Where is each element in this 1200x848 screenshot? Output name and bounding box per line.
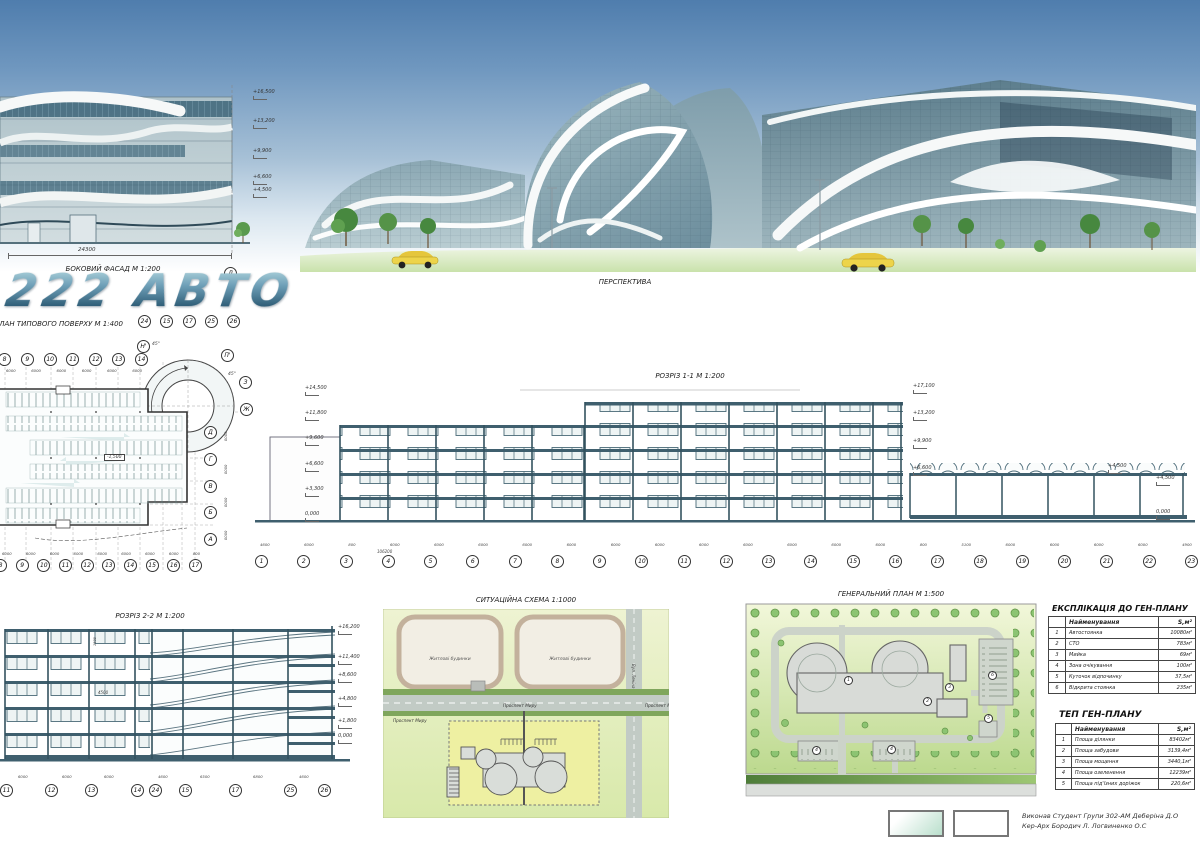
plan-top-dimensions: 600060006000600060006000 xyxy=(6,368,142,373)
axis-bubble: 5 xyxy=(424,555,437,568)
dimension-label: 6000 xyxy=(522,542,532,547)
row-number: 5 xyxy=(1056,779,1072,790)
elevation-mark: +6,600 xyxy=(305,462,327,472)
plan-marker: 4 xyxy=(812,746,821,755)
axis-bubble: 13 xyxy=(762,555,775,568)
axis-bubble: 8 xyxy=(551,555,564,568)
row-area: 10080м² xyxy=(1159,628,1196,639)
dimension-label: 6000 xyxy=(57,368,67,373)
plan-marker: 1 xyxy=(844,676,853,685)
table-row: 2 Площа забудови 3139,4м² xyxy=(1056,746,1195,757)
block-label: Житлові будинки xyxy=(548,656,590,662)
axis-bubble: 17 xyxy=(183,315,196,328)
row-name: Площа забудови xyxy=(1071,746,1158,757)
block-label: Житлові будинки xyxy=(428,656,470,662)
row-number: 5 xyxy=(1049,672,1066,683)
dimension-label: 6000 xyxy=(62,774,72,779)
axis-bubble: 10 xyxy=(37,559,50,572)
elevation-mark: +13,200 xyxy=(913,411,935,421)
dimension-label: 6000 xyxy=(224,465,229,475)
building-right-block xyxy=(762,80,1196,248)
dimension-label: 6000 xyxy=(1138,542,1148,547)
elevation-mark: 0,000 xyxy=(338,734,360,744)
presentation-board: +16,500+13,200+9,900+6,600+4,500 24300 Б… xyxy=(0,0,1200,848)
credits-line: Кер-Арх Бородич Л. Логвиненко О.С xyxy=(1022,821,1178,831)
legend-swatch-green xyxy=(888,810,944,837)
row-area: 100м² xyxy=(1159,661,1196,672)
axis-bubble: 12 xyxy=(45,784,58,797)
section-2-2-dimensions: 6000600060004600650068004600 xyxy=(0,774,340,782)
general-plan: ГЕНЕРАЛЬНИЙ ПЛАН М 1:500 1234456 xyxy=(745,590,1037,816)
explication-table: Найменування S,м² 1 Автостоянка 10080м² … xyxy=(1048,616,1196,694)
axis-bubble: 17 xyxy=(229,784,242,797)
axis-bubble: 8 xyxy=(0,559,7,572)
section-1-1-right-elevations: +4,5000,000 xyxy=(1156,476,1175,520)
dimension-label: 6000 xyxy=(2,551,12,556)
dimension-label: 6000 xyxy=(478,542,488,547)
ramp-angle-label: 45° xyxy=(228,372,236,377)
general-plan-map xyxy=(745,603,1037,803)
axis-bubble: 12 xyxy=(89,353,102,366)
elevation-mark: +13,200 xyxy=(253,119,275,129)
section-2-2-axis-bubbles: 111213142415172526 xyxy=(0,784,340,798)
facade-total-dimension: 24300 xyxy=(78,247,96,253)
dimension-label: 6000 xyxy=(1094,542,1104,547)
table-row: 4 Площа озеленення 12239м² xyxy=(1056,768,1195,779)
row-number: 4 xyxy=(1056,768,1072,779)
credits-block: Виконав Студент Групи 302-АМ Деберіна Д.… xyxy=(1022,811,1178,832)
side-facade-render xyxy=(0,85,250,255)
row-name: Автостоянка xyxy=(1066,628,1159,639)
dimension-label: 6000 xyxy=(224,531,229,541)
ground-line xyxy=(255,520,1195,523)
elevation-mark: +6,600 xyxy=(253,175,275,185)
plan-level-label: -1,500 xyxy=(104,454,125,461)
building-left-wing xyxy=(305,160,525,248)
elevation-mark: +9,900 xyxy=(253,149,275,159)
axis-bubble: 25 xyxy=(205,315,218,328)
axis-bubble: 23 xyxy=(1185,555,1198,568)
general-plan-title: ГЕНЕРАЛЬНИЙ ПЛАН М 1:500 xyxy=(791,590,991,598)
dimension-label: 6000 xyxy=(18,774,28,779)
section-1-1-title: РОЗРІЗ 1-1 М 1:200 xyxy=(590,372,790,380)
row-number: 3 xyxy=(1056,757,1072,768)
axis-bubble: 18 xyxy=(974,555,987,568)
plan-marker: 2 xyxy=(923,697,932,706)
elevation-mark: +4,500 xyxy=(253,188,275,198)
axis-bubble: 9 xyxy=(21,353,34,366)
elevation-mark: +14,500 xyxy=(305,386,327,396)
axis-bubble: 15 xyxy=(847,555,860,568)
dimension-label: 6000 xyxy=(699,542,709,547)
axis-bubble: 15 xyxy=(160,315,173,328)
row-number: 4 xyxy=(1049,661,1066,672)
row-number: 2 xyxy=(1049,639,1066,650)
elevation-mark: +6,600 xyxy=(913,466,935,476)
dimension-label: 800 xyxy=(348,542,355,547)
dimension-label: 6000 xyxy=(26,551,36,556)
axis-bubble: 9 xyxy=(16,559,29,572)
dimension-label: 6000 xyxy=(787,542,797,547)
axis-bubble: 1 xyxy=(255,555,268,568)
section-2-2-svg: 4500 1500 xyxy=(0,624,352,774)
row-area: 83402м² xyxy=(1159,735,1195,746)
residential-block: Житлові будинки xyxy=(517,617,623,687)
dimension-label: 6000 xyxy=(831,542,841,547)
elevation-mark: +1,800 xyxy=(338,719,360,729)
dimension-label: 6000 xyxy=(6,368,16,373)
axis-bubble: 11 xyxy=(59,559,72,572)
axis-bubble: 15 xyxy=(179,784,192,797)
dimension-label: 6000 xyxy=(82,368,92,373)
table-row: 3 Мийка 69м² xyxy=(1049,650,1196,661)
dimension-label: 6000 xyxy=(50,551,60,556)
row-name: Зона очікування xyxy=(1066,661,1159,672)
section-middle-part xyxy=(585,402,903,520)
axis-bubble: 17 xyxy=(931,555,944,568)
dimension-label: 4600 xyxy=(158,774,168,779)
axis-bubble: Н' xyxy=(137,340,150,353)
situation-map: Житлові будинки Житлові будинки Вул. Лен… xyxy=(383,609,669,818)
table-row: 2 СТО 783м² xyxy=(1049,639,1196,650)
dimension-label: 4600 xyxy=(260,542,270,547)
axis-bubble: 16 xyxy=(889,555,902,568)
plan-right-axis-bubbles: ДГВБА xyxy=(204,426,217,546)
axis-bubble: 17 xyxy=(189,559,202,572)
elevation-mark: +11,800 xyxy=(305,411,327,421)
row-area: 235м² xyxy=(1159,683,1196,694)
elevation-mark: +9,900 xyxy=(913,439,935,449)
perspective-title: ПЕРСПЕКТИВА xyxy=(550,278,700,286)
facade-entrance xyxy=(70,215,96,243)
window-dimension: 4500 xyxy=(98,690,109,695)
section-1-1-mid-elevations: +17,100+13,200+9,900+6,600 xyxy=(913,384,935,476)
axis-bubble: 24 xyxy=(138,315,151,328)
row-area: 37,5м² xyxy=(1159,672,1196,683)
legend-swatch-white xyxy=(953,810,1009,837)
dimension-label: 6000 xyxy=(743,542,753,547)
elevation-mark: +9,600 xyxy=(305,436,327,446)
axis-bubble: 11 xyxy=(66,353,79,366)
row-area: 12239м² xyxy=(1159,768,1195,779)
axis-bubble: 13 xyxy=(112,353,125,366)
dimension-label: 800 xyxy=(193,551,200,556)
axis-bubble: 20 xyxy=(1058,555,1071,568)
axis-bubble: 6 xyxy=(466,555,479,568)
tep-title: ТЕП ГЕН-ПЛАНУ xyxy=(1059,710,1195,720)
section-1-1-left-elevations: +14,500+11,800+9,600+6,600+3,3000,000 xyxy=(305,386,327,522)
plan-marker: 5 xyxy=(984,714,993,723)
section-1-1-total-dimension: 106200 xyxy=(377,549,392,554)
axis-bubble: 16 xyxy=(167,559,180,572)
axis-bubble: Д xyxy=(204,426,217,439)
table-row: 1 Площа ділянки 83402м² xyxy=(1056,735,1195,746)
elevation-mark: +16,200 xyxy=(338,625,360,635)
column-header-num xyxy=(1049,617,1066,628)
row-number: 3 xyxy=(1049,650,1066,661)
row-name: СТО xyxy=(1066,639,1159,650)
dimension-label: 6000 xyxy=(567,542,577,547)
dimension-label: 6000 xyxy=(1006,542,1016,547)
row-name: Відкрита стоянка xyxy=(1066,683,1159,694)
row-area: 3440,1м² xyxy=(1159,757,1195,768)
elevation-mark: 0,000 xyxy=(305,512,327,522)
table-row: 5 Площа під'їзних доріжок 220,6м² xyxy=(1056,779,1195,790)
axis-bubble: 8 xyxy=(0,353,11,366)
column-header-name: Найменування xyxy=(1071,724,1158,735)
row-area: 783м² xyxy=(1159,639,1196,650)
dimension-label: 4600 xyxy=(299,774,309,779)
axis-bubble: 25 xyxy=(284,784,297,797)
axis-bubble: 7 xyxy=(509,555,522,568)
dimension-label: 6000 xyxy=(390,542,400,547)
dimension-label: 6000 xyxy=(224,432,229,442)
table-row: 1 Автостоянка 10080м² xyxy=(1049,628,1196,639)
dimension-label: 4900 xyxy=(1182,542,1192,547)
elevation-mark: +4,800 xyxy=(338,697,360,707)
section-2-2-title: РОЗРІЗ 2-2 М 1:200 xyxy=(55,612,245,620)
elevation-mark: +8,600 xyxy=(338,673,360,683)
row-area: 3139,4м² xyxy=(1159,746,1195,757)
project-site xyxy=(447,711,599,805)
axis-bubble: 10 xyxy=(44,353,57,366)
axis-bubble: 26 xyxy=(318,784,331,797)
axis-bubble: 19 xyxy=(1016,555,1029,568)
tep-table-block: ТЕП ГЕН-ПЛАНУ Найменування S,м² 1 Площа … xyxy=(1055,710,1195,790)
dimension-label: 6000 xyxy=(434,542,444,547)
facade-dimension-line: 24300 xyxy=(8,255,232,256)
dimension-label: 6000 xyxy=(97,551,107,556)
row-area: 69м² xyxy=(1159,650,1196,661)
table-row: 5 Куточок відпочинку 37,5м² xyxy=(1049,672,1196,683)
dimension-label: 6000 xyxy=(304,542,314,547)
row-name: Куточок відпочинку xyxy=(1066,672,1159,683)
section-2-2-elevations: +16,200+11,400+8,600+4,800+1,8000,000 xyxy=(338,625,360,744)
street-road xyxy=(746,784,1036,796)
building-central-sails xyxy=(524,82,767,248)
elevation-mark: +11,400 xyxy=(338,655,360,665)
typical-floor-plan: ПЛАН ТИПОВОГО ПОВЕРХУ М 1:400 2415172526… xyxy=(0,312,270,612)
axis-bubble: 11 xyxy=(678,555,691,568)
axis-bubble: 24 xyxy=(149,784,162,797)
explication-table-block: ЕКСПЛІКАЦІЯ ДО ГЕН-ПЛАНУ Найменування S,… xyxy=(1048,604,1198,694)
axis-bubble: 3 xyxy=(340,555,353,568)
dimension-label: 6500 xyxy=(200,774,210,779)
elevation-mark: +16,500 xyxy=(253,90,275,100)
dimension-label: 6000 xyxy=(31,368,41,373)
dimension-label: 6000 xyxy=(655,542,665,547)
row-name: Площа мощення xyxy=(1071,757,1158,768)
dimension-label: 800 xyxy=(920,542,927,547)
axis-bubble: 11 xyxy=(0,784,13,797)
axis-bubble: 21 xyxy=(1100,555,1113,568)
elevation-mark: +4,500 xyxy=(1156,476,1175,486)
dimension-label: 6000 xyxy=(169,551,179,556)
section-1-1-drawing: РОЗРІЗ 1-1 М 1:200 +14,500+11,800+9,600+… xyxy=(255,370,1200,588)
plan-bottom-axis-bubbles: 891011121314151617 xyxy=(0,559,202,572)
perspective-render xyxy=(300,60,1196,272)
avenue-label: Проспект Миру xyxy=(503,703,537,708)
axis-bubble: 22 xyxy=(1143,555,1156,568)
row-name: Площа ділянки xyxy=(1071,735,1158,746)
axis-bubble: 4 xyxy=(382,555,395,568)
plan-right-dimensions: 6000600060006000 xyxy=(221,434,231,538)
axis-bubble: Ж xyxy=(240,403,253,416)
column-header-area: S,м² xyxy=(1159,617,1196,628)
plan-ramp-axis-bubbles: 2415172526 xyxy=(138,315,240,328)
table-row: 3 Площа мощення 3440,1м² xyxy=(1056,757,1195,768)
axis-bubble: 26 xyxy=(227,315,240,328)
axis-bubble: 10 xyxy=(635,555,648,568)
facade-elevation-marks: +16,500+13,200+9,900+6,600+4,500 xyxy=(253,90,275,198)
situation-scheme: Житлові будинки Житлові будинки Вул. Лен… xyxy=(383,596,669,820)
section-2-2-drawing: 4500 1500 РОЗРІЗ 2-2 М 1:200 +16,200+11,… xyxy=(0,608,362,816)
axis-bubble: Г xyxy=(204,453,217,466)
axis-bubble: Б xyxy=(204,506,217,519)
row-name: Площа під'їзних доріжок xyxy=(1071,779,1158,790)
row-area: 220,6м² xyxy=(1159,779,1195,790)
dimension-label: 5100 xyxy=(961,542,971,547)
row-number: 1 xyxy=(1049,628,1066,639)
avenue-label: Проспект Миру xyxy=(645,703,669,708)
section-1-1-svg xyxy=(255,370,1200,538)
axis-bubble: 13 xyxy=(102,559,115,572)
sill-dimension: 1500 xyxy=(93,636,97,646)
dimension-label: 6000 xyxy=(1050,542,1060,547)
section-left-part xyxy=(340,425,585,520)
column-header-name: Найменування xyxy=(1066,617,1159,628)
situation-title: СИТУАЦІЙНА СХЕМА 1:1000 xyxy=(426,596,626,604)
tree xyxy=(234,222,250,243)
street-label: Вул. Леніна xyxy=(631,664,636,689)
plan-top-axis-bubbles: 891011121314 xyxy=(0,353,148,366)
row-number: 6 xyxy=(1049,683,1066,694)
table-row: 4 Зона очікування 100м² xyxy=(1049,661,1196,672)
dimension-label: 6000 xyxy=(74,551,84,556)
elevation-mark: 0,000 xyxy=(1156,510,1175,520)
axis-bubble: 14 xyxy=(135,353,148,366)
axis-bubble: 12 xyxy=(720,555,733,568)
axis-bubble: А xyxy=(204,533,217,546)
plan-title: ПЛАН ТИПОВОГО ПОВЕРХУ М 1:400 xyxy=(0,320,123,328)
axis-bubble: 2 xyxy=(297,555,310,568)
tep-table: Найменування S,м² 1 Площа ділянки 83402м… xyxy=(1055,723,1195,790)
section-1-1-dimensions: 4600600080060006000600060006000600060006… xyxy=(260,542,1192,547)
avenue-label: Проспект Миру xyxy=(393,718,427,723)
axis-bubble: В xyxy=(204,480,217,493)
dimension-label: 6000 xyxy=(107,368,117,373)
section-1-1-axis-bubbles: 1234567891011121314151617181920212223 xyxy=(255,555,1198,568)
axis-bubble: 14 xyxy=(131,784,144,797)
axis-bubble: 9 xyxy=(593,555,606,568)
axis-bubble: 13 xyxy=(85,784,98,797)
section-low-part xyxy=(910,463,1187,519)
street-green-strip xyxy=(746,775,1036,784)
axis-bubble: 15 xyxy=(146,559,159,572)
plan-marker: 6 xyxy=(988,671,997,680)
ramp-angle-label: 45° xyxy=(152,342,160,347)
plan-marker: 3 xyxy=(945,683,954,692)
column-header-num xyxy=(1056,724,1072,735)
explication-title: ЕКСПЛІКАЦІЯ ДО ГЕН-ПЛАНУ xyxy=(1052,604,1198,613)
row-number: 2 xyxy=(1056,746,1072,757)
axis-bubble: 12 xyxy=(81,559,94,572)
axis-bubble: 14 xyxy=(804,555,817,568)
table-row: 6 Відкрита стоянка 235м² xyxy=(1049,683,1196,694)
roof-elevation-mark: +4,500 xyxy=(1108,464,1127,474)
column-header-area: S,м² xyxy=(1159,724,1195,735)
axis-bubble: П' xyxy=(221,349,234,362)
axis-bubble: З xyxy=(239,376,252,389)
dimension-label: 6000 xyxy=(876,542,886,547)
project-logo: 222 АВТО xyxy=(2,264,297,317)
plan-bottom-dimensions: 60006000600060006000600060006000800 xyxy=(2,551,200,556)
residential-block: Житлові будинки xyxy=(399,617,501,687)
dimension-label: 6000 xyxy=(224,498,229,508)
dimension-label: 6000 xyxy=(104,774,114,779)
dimension-label: 6000 xyxy=(611,542,621,547)
dimension-label: 6000 xyxy=(121,551,131,556)
elevation-mark: +3,300 xyxy=(305,487,327,497)
axis-bubble: 14 xyxy=(124,559,137,572)
dimension-label: 6800 xyxy=(253,774,263,779)
dimension-label: 6000 xyxy=(132,368,142,373)
credits-line: Виконав Студент Групи 302-АМ Деберіна Д.… xyxy=(1022,811,1178,821)
row-name: Мийка xyxy=(1066,650,1159,661)
elevation-mark: +17,100 xyxy=(913,384,935,394)
row-name: Площа озеленення xyxy=(1071,768,1158,779)
plan-marker: 4 xyxy=(887,745,896,754)
row-number: 1 xyxy=(1056,735,1072,746)
perspective-view: ПЕРСПЕКТИВА xyxy=(300,60,1196,286)
dimension-label: 6000 xyxy=(145,551,155,556)
